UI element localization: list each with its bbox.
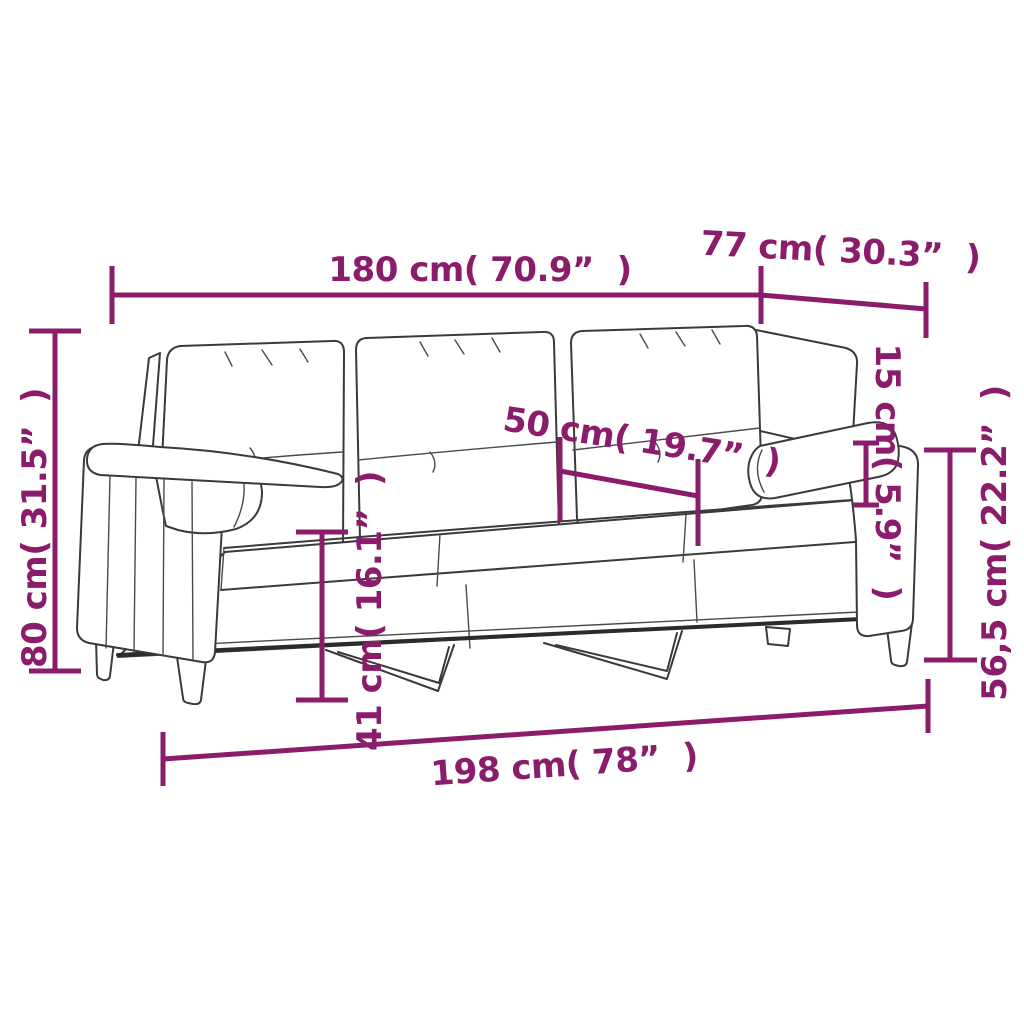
sled-leg-left [326, 645, 454, 691]
dimension-depth-top-label: 77 cm( 30.3” ) [700, 224, 982, 279]
dimension-bolster-label: 15 cm( 5.9” ) [867, 344, 907, 601]
dimension-seat-height-label: 41 cm( 16.1” ) [350, 471, 390, 751]
dimension-total-length: 198 cm( 78” ) [163, 679, 928, 794]
dimension-arm-height-label: 56,5 cm( 22.2” ) [975, 385, 1015, 701]
dimension-width-top: 180 cm( 70.9” ) [112, 250, 761, 324]
dimension-back-height-label: 80 cm( 31.5” ) [15, 388, 55, 668]
dimension-arm-height-line [924, 450, 977, 660]
dimension-depth-top-line [761, 282, 926, 338]
leg-back-right [766, 627, 790, 646]
dimension-width-top-label: 180 cm( 70.9” ) [328, 250, 631, 290]
dimension-total-length-label: 198 cm( 78” ) [429, 736, 699, 795]
sled-leg-right [544, 631, 682, 679]
leg-front-left [177, 657, 206, 704]
sofa-drawing [77, 326, 918, 704]
dimension-back-height: 80 cm( 31.5” ) [15, 331, 81, 671]
dimension-arm-height: 56,5 cm( 22.2” ) [924, 385, 1015, 701]
sofa-dimension-diagram: 180 cm( 70.9” ) 77 cm( 30.3” ) 80 cm( 31… [0, 0, 1024, 1024]
dimension-depth-top: 77 cm( 30.3” ) [700, 224, 982, 338]
diagram-canvas: 180 cm( 70.9” ) 77 cm( 30.3” ) 80 cm( 31… [0, 0, 1024, 1024]
